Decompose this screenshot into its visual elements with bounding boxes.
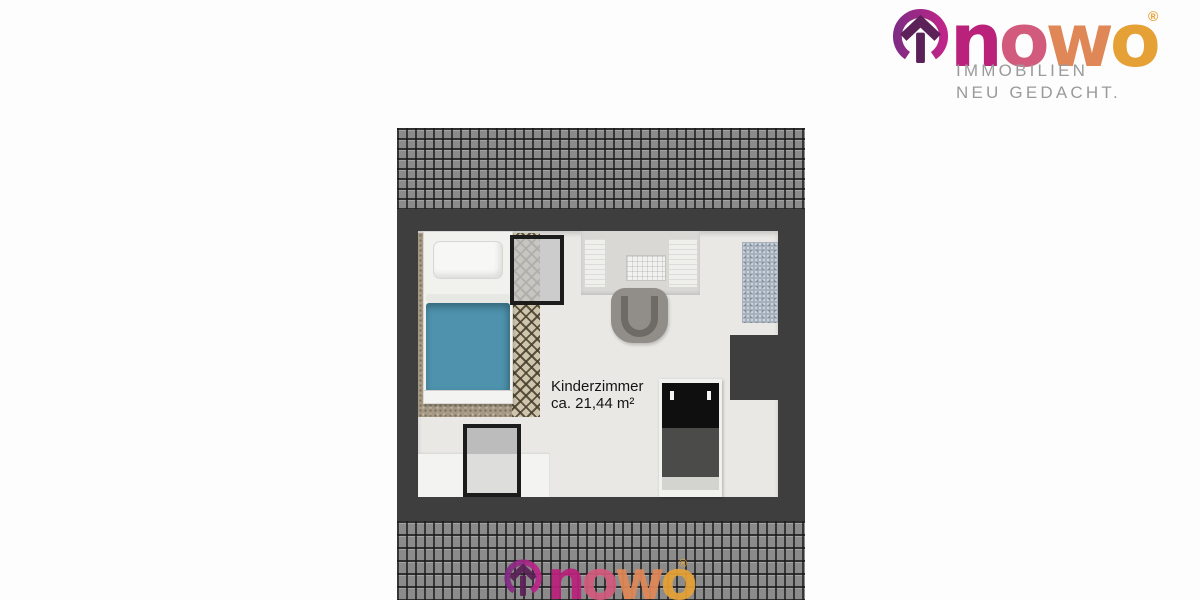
desk-chair bbox=[611, 288, 668, 343]
wall-notch bbox=[730, 335, 778, 400]
floorplan: Kinderzimmer ca. 21,44 m² nowo ® bbox=[397, 128, 805, 600]
brand-tagline: IMMOBILIEN NEU GEDACHT. bbox=[956, 60, 1121, 104]
side-rug bbox=[742, 242, 778, 323]
wardrobe-front bbox=[662, 383, 719, 428]
desk bbox=[581, 231, 700, 295]
bed-blanket bbox=[426, 303, 510, 392]
desk-shelf-left bbox=[585, 239, 605, 287]
pillow bbox=[433, 241, 503, 279]
wardrobe bbox=[659, 379, 722, 497]
bed bbox=[423, 231, 513, 404]
keyboard bbox=[626, 255, 666, 281]
wardrobe-base bbox=[662, 477, 719, 490]
wordmark-letter: n bbox=[547, 549, 581, 600]
tagline-line1: IMMOBILIEN bbox=[956, 60, 1121, 82]
room-name: Kinderzimmer bbox=[551, 378, 644, 395]
brand-wordmark: nowo bbox=[547, 554, 694, 600]
dormer-window-glass bbox=[467, 428, 517, 454]
dormer-window bbox=[463, 424, 521, 497]
tagline-line2: NEU GEDACHT. bbox=[956, 82, 1121, 104]
room-kinderzimmer: Kinderzimmer ca. 21,44 m² bbox=[418, 231, 778, 497]
desk-shelf-right bbox=[669, 239, 697, 287]
roof-tiles-top bbox=[397, 128, 805, 209]
bed-sheet-fold bbox=[426, 294, 510, 303]
wordmark-letter: o bbox=[660, 549, 693, 600]
wardrobe-handle bbox=[707, 391, 711, 400]
chair-seat bbox=[621, 296, 658, 337]
room-area: ca. 21,44 m² bbox=[551, 395, 644, 412]
wardrobe-body bbox=[662, 428, 719, 477]
registered-trademark-symbol: ® bbox=[1148, 8, 1158, 24]
skylight-window bbox=[510, 235, 564, 305]
house-in-circle-icon bbox=[503, 558, 543, 598]
registered-trademark-symbol: ® bbox=[679, 558, 687, 570]
wardrobe-handle bbox=[670, 391, 674, 400]
floorplan-page: nowo ® IMMOBILIEN NEU GEDACHT. bbox=[0, 0, 1200, 600]
wordmark-letter: w bbox=[615, 549, 661, 600]
bed-footboard bbox=[424, 390, 512, 403]
wordmark-letter: o bbox=[581, 549, 614, 600]
house-in-circle-icon bbox=[891, 7, 950, 66]
brand-logo: nowo ® IMMOBILIEN NEU GEDACHT. bbox=[0, 0, 1200, 120]
room-label: Kinderzimmer ca. 21,44 m² bbox=[551, 378, 644, 412]
